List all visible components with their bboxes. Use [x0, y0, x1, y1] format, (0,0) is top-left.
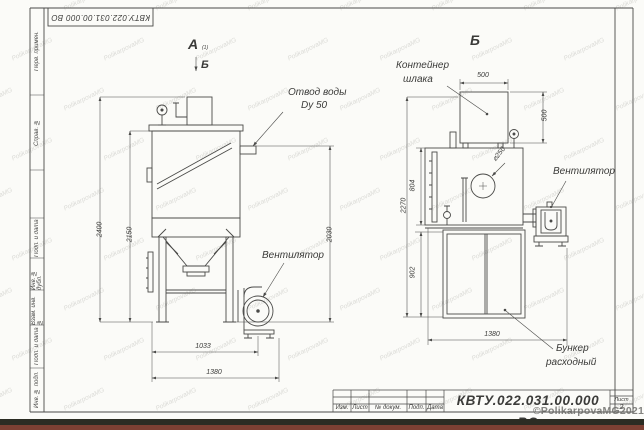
dim-500-height: 500 — [542, 107, 549, 125]
frame-field-podp-data-1: Подп. и дата — [30, 218, 44, 258]
dim-2400: 2400 — [97, 219, 104, 241]
view-a-sublabel: (1) — [202, 45, 208, 51]
dim-2270: 2270 — [401, 195, 408, 217]
tb-label-dokum: № докум. — [369, 405, 407, 411]
doc-number-top: КВТУ.022.031.00.000 ВО — [48, 8, 153, 26]
dim-2150: 2150 — [127, 224, 134, 246]
tb-label-podp: Подп. — [407, 405, 426, 411]
section-b-mark: Б — [201, 59, 209, 71]
drawing-sheet: PolikarpovaMGPolikarpovaMGPolikarpovaMGP… — [0, 0, 644, 430]
frame-field-sprav-no: Справ. № — [30, 95, 44, 170]
callout-water-outlet-1: Отвод воды — [288, 87, 346, 98]
callout-slag-container-1: Контейнер — [396, 60, 449, 71]
view-a-label: А — [188, 36, 198, 52]
bottom-strip-red — [0, 425, 644, 430]
leader-lines — [196, 57, 566, 349]
callout-fan-right: Вентилятор — [553, 166, 615, 177]
frame-field-inv-podl: Инв. № подл. — [30, 368, 44, 412]
dim-902: 902 — [410, 264, 417, 282]
frame-field-perv-primen: Перв. примен. — [30, 8, 44, 95]
dim-1380-left: 1380 — [203, 369, 225, 376]
dim-500-width: 500 — [474, 72, 492, 79]
callout-fan-left: Вентилятор — [262, 250, 324, 261]
callout-bunker-1: Бункер — [556, 343, 589, 354]
tb-sheet-label: Лист — [610, 397, 633, 403]
fan-right-linework — [523, 202, 568, 246]
dim-804: 804 — [410, 177, 417, 195]
water-outlet-stub — [240, 146, 256, 154]
fan-left-linework — [238, 287, 274, 338]
tb-label-izm: Изм. — [333, 405, 351, 411]
dim-1033: 1033 — [192, 343, 214, 350]
right-view-linework — [425, 92, 568, 318]
callout-bunker-2: расходный — [546, 357, 596, 368]
frame-field-vzam-inv: Взам. инв. № — [30, 290, 44, 325]
callout-water-outlet-2: Dy 50 — [301, 100, 327, 111]
left-view-linework — [146, 97, 274, 338]
callout-slag-container-2: шлака — [403, 74, 433, 85]
tb-label-list: Лист — [351, 405, 369, 411]
frame-field-inv-dubl: Инв. № дубл. — [30, 258, 44, 290]
bunker-box — [443, 230, 525, 318]
valve-icon — [444, 212, 451, 219]
dim-1380-right: 1380 — [481, 331, 503, 338]
view-b-label: Б — [470, 32, 480, 48]
copyright-watermark: ©PolikarpovaMG2021 — [533, 405, 644, 417]
dim-2030: 2030 — [327, 224, 334, 246]
frame-field-podp-data-2: Подп. и дата — [30, 325, 44, 368]
tb-label-data: Дата — [426, 405, 444, 411]
